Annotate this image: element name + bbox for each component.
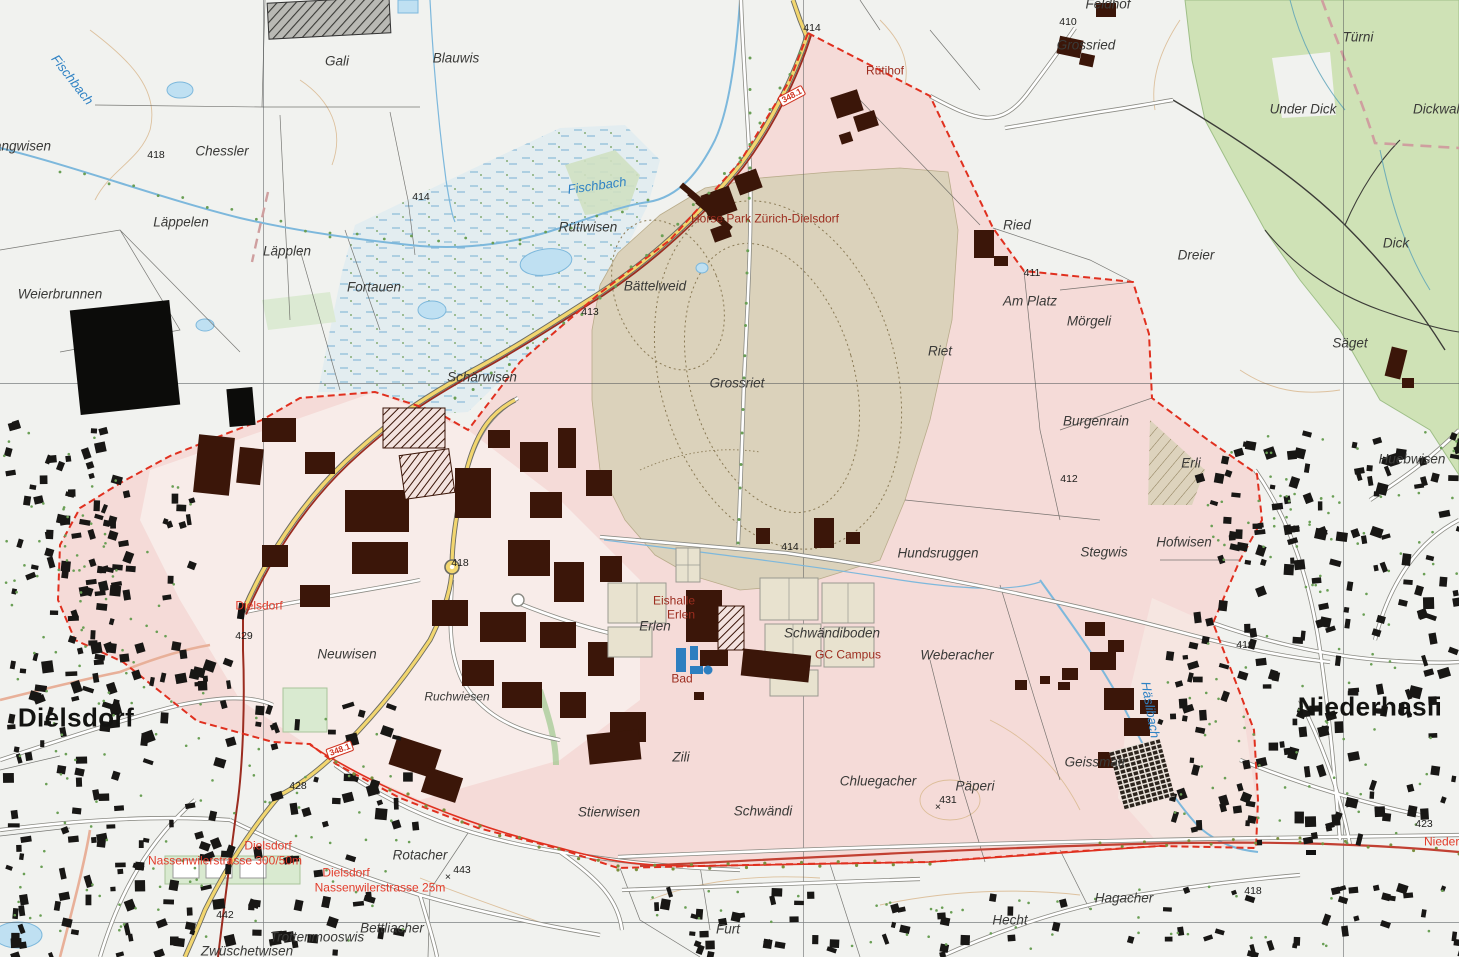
map-label-442-78: 442 xyxy=(216,910,234,922)
map-label-bettliacher-79: Bettliacher xyxy=(360,922,424,937)
map-label-grossried-24: Grossried xyxy=(1057,39,1116,54)
map-label-schärwisen-15: Schärwisen xyxy=(447,371,517,386)
map-label-nassenwilerstrasse-300-50m-83: Nassenwilerstrasse 300/50m xyxy=(148,854,302,867)
map-label-stegwis-40: Stegwis xyxy=(1080,546,1127,561)
map-label-fischbach-12: Fischbach xyxy=(567,175,628,197)
map-labels: angwisenFischbachGaliBlauwisChessler4184… xyxy=(0,0,1459,957)
map-label-niederhasli-57: Niederhasli xyxy=(1298,693,1443,722)
map-label-423-62: 423 xyxy=(1415,819,1433,831)
map-label-häslibach-60: Häslibach xyxy=(1138,681,1162,740)
map-label-429-54: 429 xyxy=(235,631,253,643)
map-label-431-70: 431 xyxy=(939,795,957,807)
map-label-dielsdorf-82: Dielsdorf xyxy=(244,839,291,852)
map-label-erli-37: Erli xyxy=(1181,457,1201,472)
map-label-348-1-21: 348.1 xyxy=(777,85,806,108)
map-label-bättelweid-13: Bättelweid xyxy=(624,280,686,295)
map-label-blauwis-3: Blauwis xyxy=(433,52,480,67)
map-label-418-64: 418 xyxy=(1244,886,1262,898)
map-label-hofwisen-41: Hofwisen xyxy=(1156,536,1212,551)
map-label-chessler-4: Chessler xyxy=(195,145,248,160)
map-label-rütihof-19: Rütihof xyxy=(866,64,904,77)
map-label-428-58: 428 xyxy=(289,781,307,793)
map-label-ried-31: Ried xyxy=(1003,219,1031,234)
map-label-weberacher-43: Weberacher xyxy=(920,649,993,664)
map-label-päperi-69: Päperi xyxy=(955,780,994,795)
map-label-zwüschetwisen-81: Zwüschetwisen xyxy=(201,945,293,957)
map-label-bad-49: Bad xyxy=(671,672,692,685)
map-label-zili-74: Zili xyxy=(672,751,689,766)
map-label-419-59: 419 xyxy=(1236,640,1254,652)
map-label-418-45: 418 xyxy=(451,558,469,570)
map-label-dick-30: Dick xyxy=(1383,237,1409,252)
map-label-nassenwilerstrasse-25m-85: Nassenwilerstrasse 25m xyxy=(315,881,446,894)
map-label-dickwald-28: Dickwald xyxy=(1413,103,1459,118)
map-label-weierbrunnen-9: Weierbrunnen xyxy=(18,288,103,303)
map-label-hundsruggen-42: Hundsruggen xyxy=(897,547,978,562)
map-label-413-14: 413 xyxy=(581,307,599,319)
map-label-türni-26: Türni xyxy=(1343,31,1374,46)
map-label-under-dick-27: Under Dick xyxy=(1270,103,1337,118)
map-label-chluegacher-68: Chluegacher xyxy=(840,775,917,790)
map-label-dielsdorf-84: Dielsdorf xyxy=(322,866,369,879)
map-label-horse-park-zürich-dielsdorf-18: Horse Park Zürich-Dielsdorf xyxy=(691,212,839,225)
map-label-feldhof-25: Feldhof xyxy=(1085,0,1130,12)
map-label---77: × xyxy=(445,872,451,884)
map-canvas[interactable]: angwisenFischbachGaliBlauwisChessler4184… xyxy=(0,0,1459,957)
map-label-burgenrain-36: Burgenrain xyxy=(1063,415,1129,430)
map-label-huebwisen-39: Huebwisen xyxy=(1379,453,1446,468)
map-label---71: × xyxy=(935,802,941,814)
map-label-grossriet-16: Grossriet xyxy=(710,377,765,392)
map-label-fischbach-1: Fischbach xyxy=(48,52,96,107)
map-label-schwändiboden-50: Schwändiboden xyxy=(784,627,880,642)
map-label-dielsdorf-56: Dielsdorf xyxy=(18,704,134,733)
map-label-furt-67: Furt xyxy=(716,923,740,938)
map-label-rütiwisen-11: Rütiwisen xyxy=(559,221,618,236)
map-label-stierwisen-73: Stierwisen xyxy=(578,806,640,821)
map-label-418-5: 418 xyxy=(147,150,165,162)
map-label-411-32: 411 xyxy=(1024,268,1041,280)
map-label-säget-35: Säget xyxy=(1332,337,1367,352)
map-label-eishalle-46: Eishalle xyxy=(653,594,695,607)
map-label-gali-2: Gali xyxy=(325,55,349,70)
map-label-erlen-48: Erlen xyxy=(639,620,671,635)
map-label-niederhasli-63: Niederhasli xyxy=(1424,835,1459,848)
map-label-am-platz-33: Am Platz xyxy=(1003,295,1057,310)
map-label-414-20: 414 xyxy=(803,23,821,35)
map-label-dreier-29: Dreier xyxy=(1178,249,1215,264)
map-label-läppelen-7: Läppelen xyxy=(153,216,209,231)
map-label-412-38: 412 xyxy=(1060,474,1078,486)
map-label-mörgeli-34: Mörgeli xyxy=(1067,315,1111,330)
map-label-410-23: 410 xyxy=(1059,17,1077,29)
map-label-erlen-47: Erlen xyxy=(667,608,695,621)
map-label-neuwisen-52: Neuwisen xyxy=(317,648,376,663)
map-label-rotacher-75: Rotacher xyxy=(393,849,448,864)
map-label-angwisen-0: angwisen xyxy=(0,140,51,155)
map-label-läpplen-8: Läpplen xyxy=(263,245,311,260)
map-label-414-6: 414 xyxy=(412,192,430,204)
map-label-geissmatt-61: Geissmatt xyxy=(1065,756,1126,771)
map-label-348-1-22: 348.1 xyxy=(325,740,355,760)
map-label-443-76: 443 xyxy=(453,865,471,877)
map-label-trottenmooswis-80: Trottenmooswis xyxy=(270,931,364,946)
map-label-riet-17: Riet xyxy=(928,345,952,360)
map-label-hagacher-65: Hagacher xyxy=(1095,892,1154,907)
map-label-gc-campus-51: GC Campus xyxy=(815,648,881,661)
map-label-414-44: 414 xyxy=(781,542,799,554)
map-label-hecht-66: Hecht xyxy=(992,914,1027,929)
map-label-ruchwiesen-55: Ruchwiesen xyxy=(424,690,489,703)
map-label-schwändi-72: Schwändi xyxy=(734,805,793,820)
map-label-dielsdorf-53: Dielsdorf xyxy=(235,599,282,612)
map-label-fortauen-10: Fortauen xyxy=(347,281,401,296)
